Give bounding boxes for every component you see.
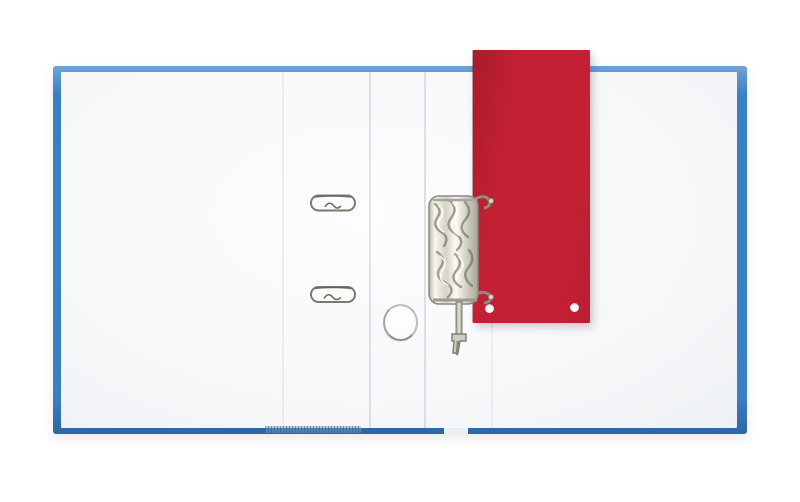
metal-clip-icon [309, 193, 357, 213]
page-crease-line [282, 72, 284, 428]
binder-photo-scene [0, 0, 800, 502]
metal-clip-bottom [309, 284, 357, 304]
spine-fold-left [369, 72, 371, 428]
metal-ring [383, 304, 418, 341]
binder-pages [61, 72, 737, 428]
lever-arch-mechanism [425, 190, 497, 362]
bottom-rim-shade [200, 428, 435, 433]
metal-clip-top [309, 193, 357, 213]
binder-cover [53, 66, 747, 434]
lever-arch-mechanism-icon [425, 190, 497, 362]
metal-clip-icon [309, 284, 357, 305]
bottom-rim-gap [444, 427, 468, 434]
punch-hole-right [570, 303, 579, 312]
